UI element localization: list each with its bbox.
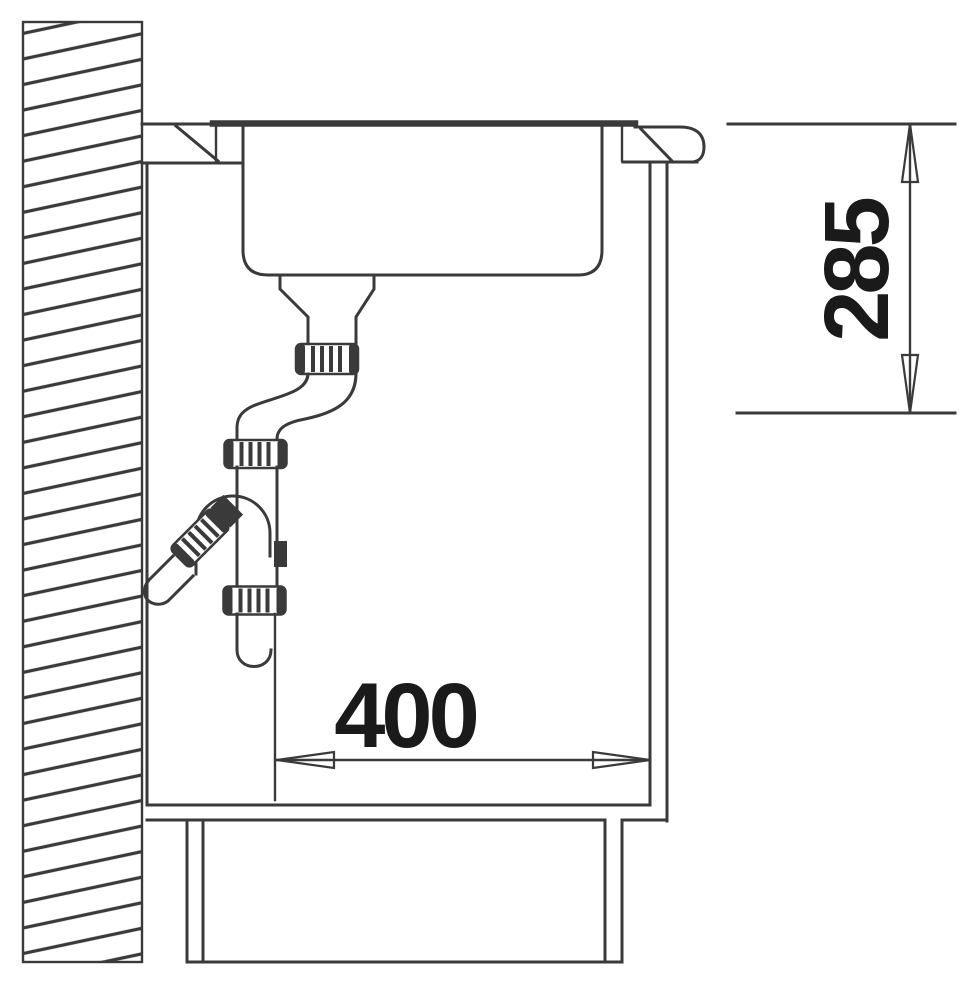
sink	[213, 124, 635, 276]
base-cabinet	[147, 162, 667, 962]
drawing-canvas: 400 285	[0, 0, 980, 990]
wall-hatch	[23, 22, 142, 962]
junction-tab	[274, 541, 287, 567]
worktop	[142, 124, 704, 163]
s-bend-right-wall	[277, 374, 356, 441]
dimension-285-label: 285	[806, 198, 908, 341]
worktop-left-break-line	[176, 126, 218, 161]
dimension-vertical: 285	[728, 124, 955, 413]
union-nut-1	[296, 344, 358, 374]
trap-pipe-bottom-cap	[237, 614, 271, 667]
sink-installation-section-drawing: 400 285	[0, 0, 980, 990]
s-bend-left-wall	[237, 374, 308, 441]
union-nut-2	[225, 440, 287, 468]
strainer-right-profile	[356, 277, 374, 345]
plinth	[187, 820, 622, 962]
sink-basin	[243, 127, 602, 275]
drain-assembly	[144, 277, 374, 667]
strainer-left-profile	[280, 277, 308, 345]
worktop-right-break-line	[641, 129, 672, 161]
dimension-400-label: 400	[334, 665, 476, 767]
wall-section	[23, 22, 142, 962]
dimension-horizontal: 400	[275, 614, 650, 800]
union-nut-3	[224, 587, 286, 615]
